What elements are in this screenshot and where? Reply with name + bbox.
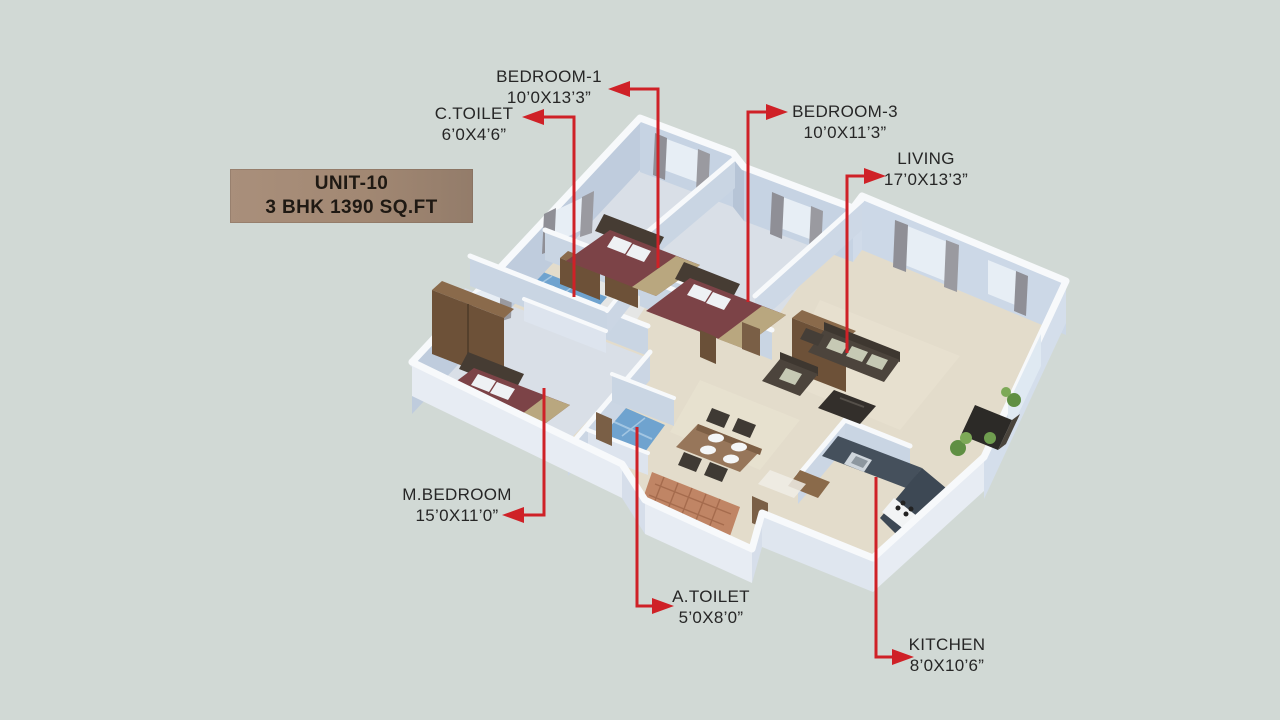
room-size: 17’0X13’3” <box>884 169 968 190</box>
label-bedroom3: BEDROOM-3 10’0X11’3” <box>792 101 898 143</box>
room-name: A.TOILET <box>672 586 750 607</box>
room-name: KITCHEN <box>909 634 986 655</box>
room-name: LIVING <box>884 148 968 169</box>
unit-title-box: UNIT-10 3 BHK 1390 SQ.FT <box>230 169 473 223</box>
arrow-atoilet-icon <box>652 598 674 614</box>
room-size: 5’0X8’0” <box>672 607 750 628</box>
room-size: 6’0X4’6” <box>435 124 514 145</box>
label-bedroom1: BEDROOM-1 10’0X13’3” <box>496 66 602 108</box>
room-name: BEDROOM-3 <box>792 101 898 122</box>
room-size: 10’0X11’3” <box>792 122 898 143</box>
arrow-living-icon <box>864 168 886 184</box>
arrow-ctoilet-icon <box>522 109 544 125</box>
floor-plan-render <box>0 0 1280 720</box>
unit-spec: 3 BHK 1390 SQ.FT <box>230 196 473 220</box>
unit-number: UNIT-10 <box>230 172 473 196</box>
floor-plan-page: UNIT-10 3 BHK 1390 SQ.FT BEDROOM-1 10’0X… <box>0 0 1280 720</box>
room-size: 15’0X11’0” <box>402 505 511 526</box>
arrow-bedroom3-icon <box>766 104 788 120</box>
label-ctoilet: C.TOILET 6’0X4’6” <box>435 103 514 145</box>
room-name: M.BEDROOM <box>402 484 511 505</box>
label-kitchen: KITCHEN 8’0X10’6” <box>909 634 986 676</box>
label-living: LIVING 17’0X13’3” <box>884 148 968 190</box>
room-name: C.TOILET <box>435 103 514 124</box>
arrow-bedroom1-icon <box>608 81 630 97</box>
room-size: 8’0X10’6” <box>909 655 986 676</box>
room-name: BEDROOM-1 <box>496 66 602 87</box>
label-atoilet: A.TOILET 5’0X8’0” <box>672 586 750 628</box>
label-mbedroom: M.BEDROOM 15’0X11’0” <box>402 484 511 526</box>
